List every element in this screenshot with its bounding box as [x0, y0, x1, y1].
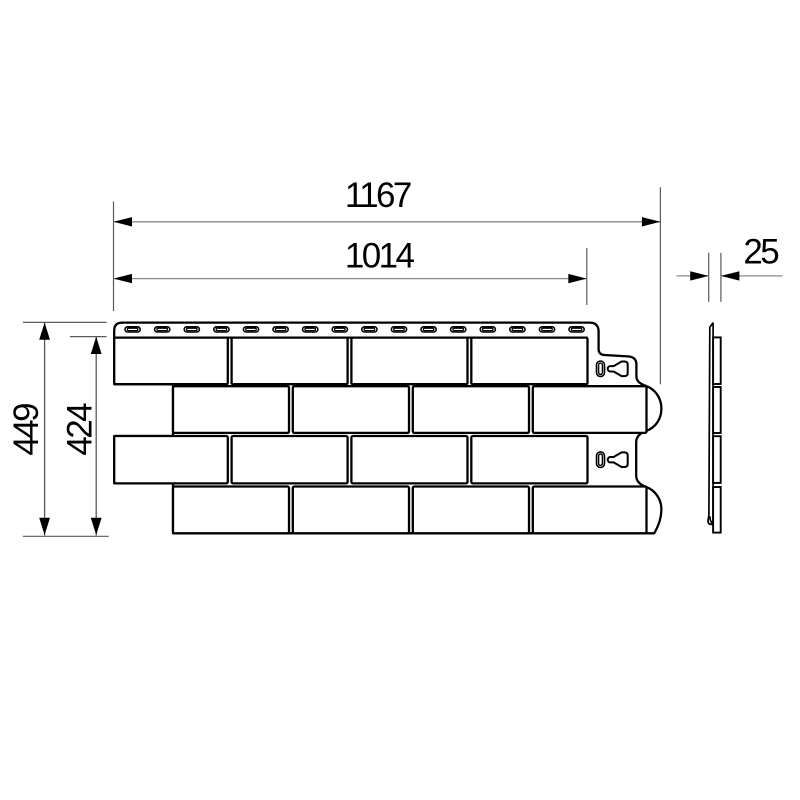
svg-text:25: 25	[743, 232, 778, 271]
svg-text:449: 449	[7, 404, 46, 456]
svg-text:1014: 1014	[345, 237, 415, 276]
svg-text:424: 424	[61, 403, 100, 456]
svg-text:1167: 1167	[345, 176, 411, 215]
